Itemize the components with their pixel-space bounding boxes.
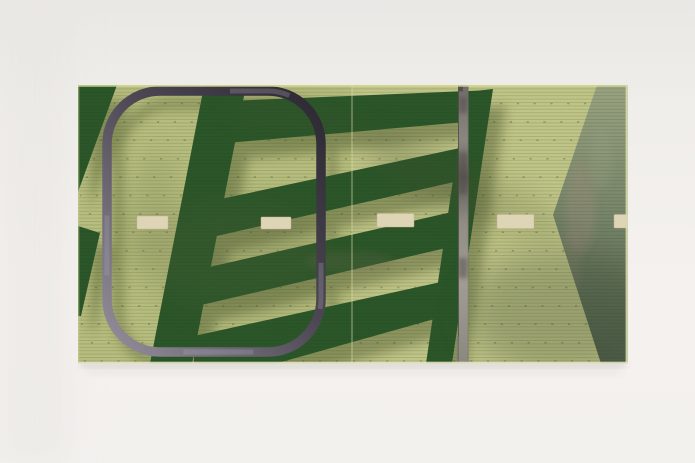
panel-drop-shadow-2	[86, 366, 620, 374]
panel-right-edge	[626, 85, 629, 364]
panel-group	[78, 85, 657, 380]
strip-dark-patch	[459, 152, 468, 194]
artwork-panel-scene	[0, 0, 695, 463]
backdrop-left-shade	[0, 0, 70, 463]
panel-bottom-edge	[78, 362, 628, 364]
gray-vertical-strip	[458, 85, 469, 364]
artwork-photo: Photograph of an abstract green artwork …	[0, 0, 695, 463]
road-dash-3	[377, 214, 414, 228]
strip-dark-patch	[459, 258, 468, 278]
road-dash-2	[261, 217, 291, 229]
road-dash-4	[497, 215, 534, 229]
road-dash-1	[137, 216, 168, 229]
strip-bottom-step	[457, 337, 459, 364]
strip-dark-patch	[459, 97, 468, 113]
